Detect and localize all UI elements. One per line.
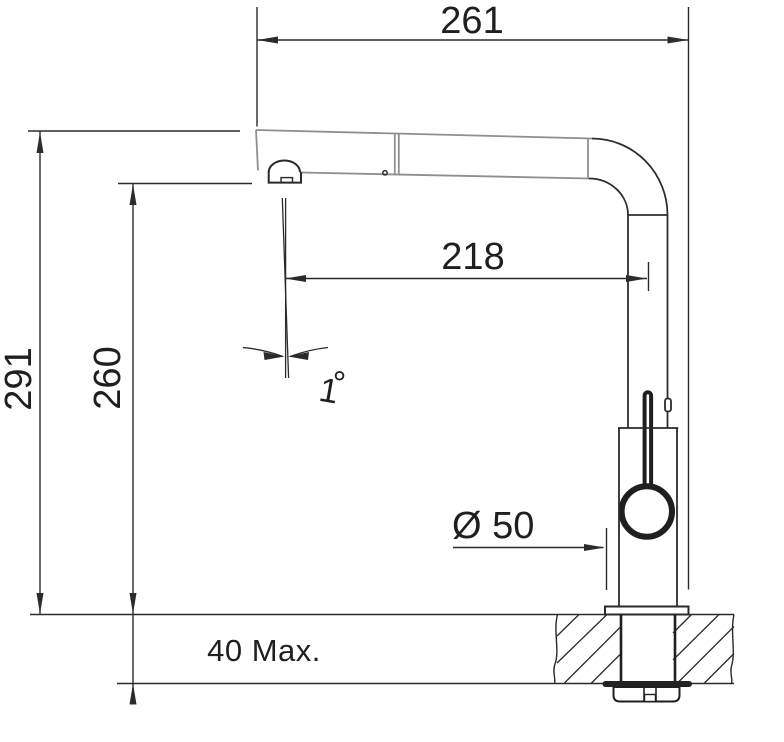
drawing-svg: 261 218 291 260 Ø 50 40 Max. 1 °	[0, 0, 784, 742]
tilt-angle-construction	[243, 198, 328, 378]
counter-hatching	[557, 615, 734, 684]
dim-aerator-reach: 218	[441, 236, 504, 278]
dimension-arrowheads	[37, 37, 689, 705]
dim-base-diameter: Ø 50	[452, 505, 534, 547]
dim-tilt-angle-unit: °	[333, 365, 347, 403]
handle-clip	[665, 399, 671, 412]
dim-overall-height: 291	[0, 347, 40, 410]
faucet-spout	[256, 130, 592, 179]
faucet-bend-and-riser	[589, 139, 668, 429]
counter-break-right	[731, 615, 734, 684]
counter-break-left	[554, 615, 558, 684]
spray-head	[269, 160, 387, 182]
dim-max-counter-thickness: 40 Max.	[207, 633, 321, 668]
faucet-dimension-drawing: 261 218 291 260 Ø 50 40 Max. 1 °	[0, 0, 784, 742]
mounting-section	[554, 607, 734, 702]
dim-aerator-height: 260	[87, 346, 129, 409]
lever-handle	[622, 392, 672, 536]
base-flange	[605, 607, 689, 615]
handle-ring	[622, 486, 672, 536]
dim-overall-reach: 261	[440, 0, 503, 42]
